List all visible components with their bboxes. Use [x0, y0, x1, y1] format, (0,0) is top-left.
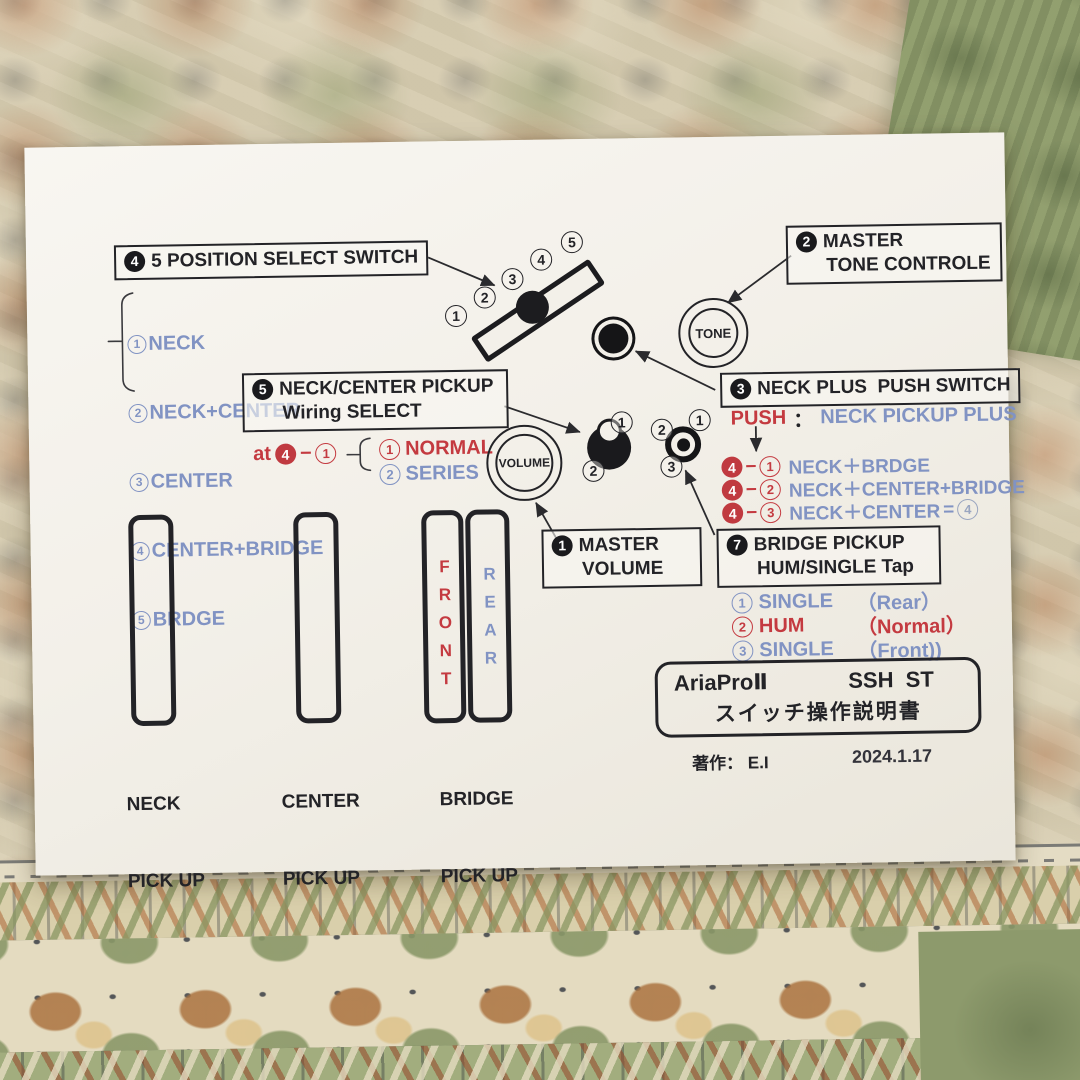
title-box: AriaProⅡ SSH ST スイッチ操作説明書: [654, 657, 981, 738]
combo-dash: −: [746, 502, 757, 524]
red-badge-4: 4: [275, 444, 296, 465]
instruction-sheet: 4 5 POSITION SELECT SWITCH 1NECK 2NECK+C…: [24, 132, 1015, 875]
list-item: 1NECK: [127, 330, 320, 356]
tap-pot-pos-3: 3: [660, 455, 682, 477]
lever-pos-4: 4: [530, 248, 552, 270]
push-switch-dot: [598, 323, 628, 353]
pickup-name: NECK: [126, 791, 203, 818]
master-volume-line1: MASTER: [578, 533, 659, 558]
red-badge-4: 4: [721, 457, 742, 478]
tone-knob-label: TONE: [688, 308, 739, 359]
combo-result: NECK＋CENTER: [789, 496, 940, 525]
wiring-option-normal: 1NORMAL: [379, 436, 493, 461]
photo-scene: 4 5 POSITION SELECT SWITCH 1NECK 2NECK+C…: [0, 0, 1080, 1080]
lever-pos-2: 2: [474, 286, 496, 308]
at-dash: −: [300, 442, 312, 465]
badge-7: 7: [727, 535, 748, 556]
center-pickup-shape: [293, 512, 341, 724]
lever-pos-1: 1: [445, 305, 467, 327]
badge-3: 3: [730, 379, 751, 400]
blue-circle-3: 3: [732, 640, 753, 661]
combo-row-3: 4−3NECK＋CENTER=4: [722, 496, 979, 527]
callout-wiring-select: 5 NECK/CENTER PICKUP Wiring SELECT: [242, 369, 509, 432]
rear-coil-label: REAR: [479, 564, 501, 676]
title-subtitle: スイッチ操作説明書: [674, 694, 962, 729]
badge-2: 2: [796, 232, 817, 253]
red-badge-4: 4: [722, 479, 743, 500]
position-label: CENTER: [150, 470, 233, 494]
wiring-pot-pos-2: 2: [582, 460, 604, 482]
neck-pickup-label: NECK PICK UP: [126, 740, 206, 946]
red-badge-4: 4: [722, 502, 743, 523]
pickup-name: BRIDGE: [439, 786, 516, 813]
red-circle-2: 2: [732, 616, 753, 637]
bridge-pickup-front-coil: FRONT: [421, 510, 466, 724]
red-circle-3: 3: [760, 502, 781, 523]
badge-1: 1: [552, 536, 573, 557]
red-circle-1: 1: [759, 456, 780, 477]
gray-circle-4: 4: [957, 499, 978, 520]
combo-dash: −: [746, 479, 757, 501]
arrow-tonebox-to-knob: [727, 256, 792, 303]
red-circle-1: 1: [316, 443, 337, 464]
pickup-name2: PICK UP: [283, 866, 362, 893]
neck-pickup-shape: [128, 514, 176, 726]
title-code: SSH ST: [848, 667, 934, 694]
lever-pos-5: 5: [561, 231, 583, 253]
wiring-option-series: 2SERIES: [379, 462, 479, 487]
volume-knob: VOLUME: [486, 424, 563, 501]
callout-5position-title: 5 POSITION SELECT SWITCH: [151, 246, 418, 274]
carpet-green-corner-bottom: [918, 928, 1080, 1080]
tap-push-pot-center: [676, 438, 689, 451]
bridge-tap-line2: HUM/SINGLE Tap: [727, 554, 931, 581]
callout-bridge-tap: 7 BRIDGE PICKUP HUM/SINGLE Tap: [716, 525, 941, 587]
push-label: PUSH: [731, 407, 787, 431]
author-credit: 著作： E.I: [692, 748, 769, 774]
wiring-pot-pos-1: 1: [611, 411, 633, 433]
neck-plus-title: NECK PLUS PUSH SWITCH: [757, 373, 1011, 401]
callout-5position: 4 5 POSITION SELECT SWITCH: [114, 240, 429, 280]
circle-2: 2: [128, 404, 147, 423]
date-label: 2024.1.17: [852, 746, 932, 768]
position-label: NECK: [148, 332, 205, 356]
blue-circle-2: 2: [379, 464, 400, 485]
list-item: 3CENTER: [129, 468, 322, 494]
at-label: at: [253, 443, 271, 466]
combo-equals: =: [943, 499, 954, 521]
wiring-line2: Wiring SELECT: [252, 398, 498, 426]
bridge-tap-line1: BRIDGE PICKUP: [753, 531, 904, 557]
volume-knob-label: VOLUME: [495, 433, 554, 492]
master-tone-line1: MASTER: [823, 229, 904, 254]
pickup-name2: PICK UP: [128, 868, 205, 895]
arrow-tapbox-to-pot: [685, 470, 714, 535]
front-coil-label: FRONT: [434, 557, 456, 697]
master-volume-line2: VOLUME: [552, 556, 692, 582]
badge-5: 5: [252, 379, 273, 400]
master-tone-line2: TONE CONTROLE: [796, 251, 992, 278]
option-label: SERIES: [405, 462, 479, 486]
center-pickup-label: CENTER PICK UP: [281, 738, 362, 944]
bridge-pickup-label: BRIDGE PICK UP: [439, 735, 519, 941]
circle-3: 3: [129, 473, 148, 492]
title-model: AriaProⅡ: [674, 669, 768, 696]
tone-knob: TONE: [678, 297, 749, 368]
red-circle-1: 1: [379, 439, 400, 460]
bracket-wiring-options: [347, 438, 370, 470]
wiring-at-line: at 4−1: [253, 442, 337, 466]
arrow-sw5-to-lever: [428, 256, 494, 286]
push-line: PUSH：NECK PICKUP PLUS: [730, 400, 1016, 433]
tap-pot-pos-1: 1: [689, 409, 711, 431]
combo-dash: −: [745, 456, 756, 478]
wiring-line1: NECK/CENTER PICKUP: [279, 374, 494, 401]
pickup-name2: PICK UP: [441, 863, 518, 890]
bridge-pickup-rear-coil: REAR: [465, 509, 512, 723]
red-circle-2: 2: [760, 479, 781, 500]
option-label: NORMAL: [405, 436, 493, 460]
lever-pos-3: 3: [501, 268, 523, 290]
callout-master-volume: 1 MASTER VOLUME: [541, 527, 702, 588]
pickup-name: CENTER: [281, 789, 360, 816]
badge-4: 4: [124, 251, 145, 272]
push-value: NECK PICKUP PLUS: [820, 403, 1017, 429]
blue-circle-1: 1: [731, 592, 752, 613]
callout-master-tone: 2 MASTER TONE CONTROLE: [786, 222, 1003, 284]
push-colon: ：: [793, 403, 813, 432]
circle-1: 1: [127, 335, 146, 354]
